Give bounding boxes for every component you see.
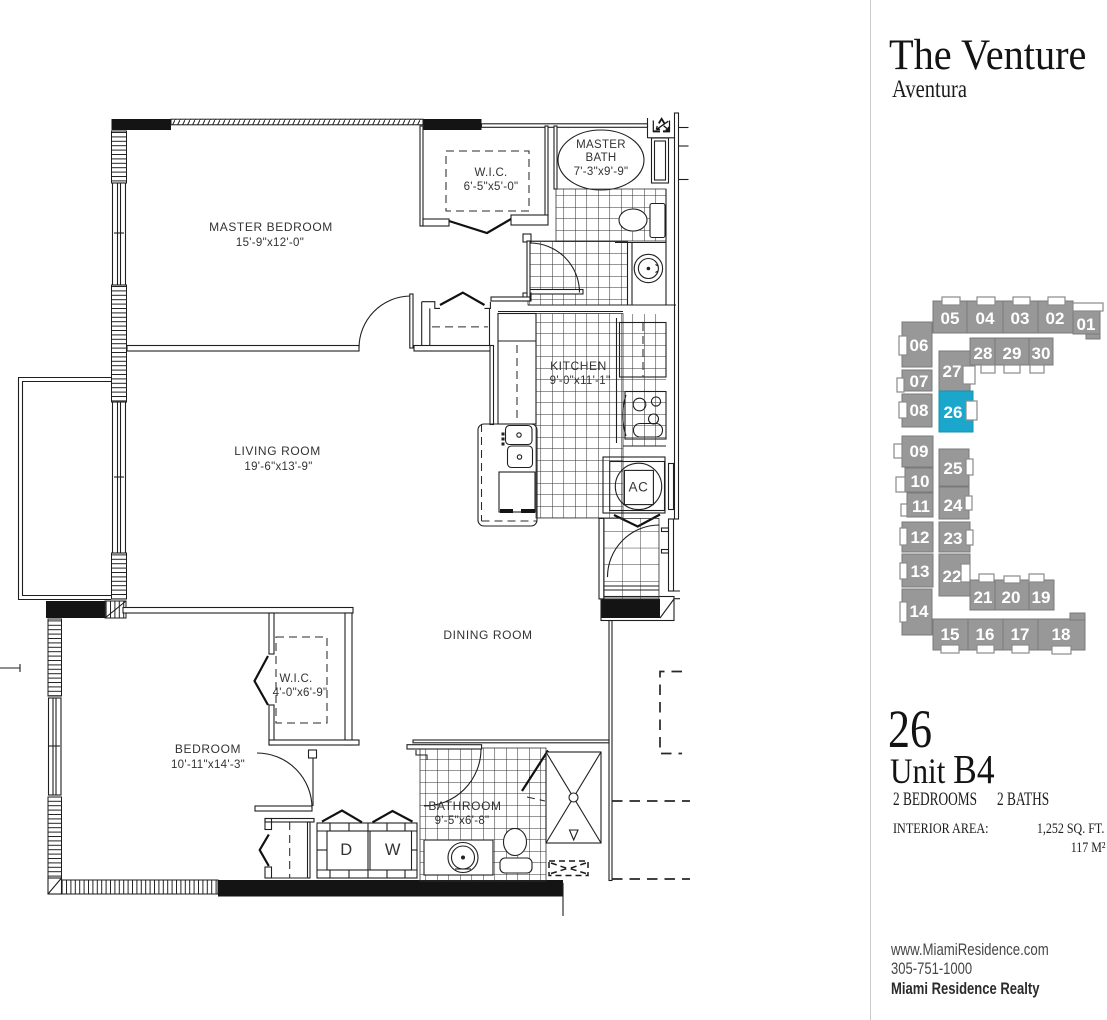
svg-text:BATHROOM: BATHROOM [428, 799, 501, 813]
svg-text:19: 19 [1032, 588, 1051, 607]
svg-text:18: 18 [1052, 625, 1071, 644]
svg-text:DINING ROOM: DINING ROOM [443, 628, 532, 642]
svg-text:25: 25 [944, 459, 963, 478]
svg-text:24: 24 [944, 496, 963, 515]
svg-text:17: 17 [1011, 625, 1030, 644]
svg-text:13: 13 [911, 562, 930, 581]
svg-text:06: 06 [910, 336, 929, 355]
svg-text:MASTER BEDROOM: MASTER BEDROOM [209, 220, 333, 234]
svg-text:26: 26 [944, 403, 963, 422]
svg-text:08: 08 [910, 401, 929, 420]
svg-text:KITCHEN: KITCHEN [550, 359, 607, 373]
svg-text:4'-0"x6'-9": 4'-0"x6'-9" [273, 687, 328, 699]
svg-text:28: 28 [974, 344, 993, 363]
svg-text:11: 11 [912, 497, 930, 516]
svg-text:29: 29 [1003, 344, 1022, 363]
svg-text:7'-3"x9'-9": 7'-3"x9'-9" [574, 166, 629, 178]
svg-text:AC: AC [629, 480, 649, 495]
svg-text:05: 05 [941, 309, 960, 328]
svg-text:09: 09 [910, 442, 929, 461]
svg-text:07: 07 [910, 372, 929, 391]
svg-text:BEDROOM: BEDROOM [175, 742, 241, 756]
svg-text:W: W [385, 841, 401, 859]
svg-text:02: 02 [1046, 309, 1065, 328]
svg-text:03: 03 [1011, 309, 1030, 328]
svg-text:15: 15 [941, 625, 960, 644]
svg-text:BATH: BATH [585, 152, 616, 164]
svg-text:15'-9"x12'-0": 15'-9"x12'-0" [236, 237, 304, 249]
svg-text:23: 23 [944, 529, 963, 548]
svg-text:W.I.C.: W.I.C. [474, 167, 507, 179]
svg-text:10: 10 [911, 472, 930, 491]
svg-text:22: 22 [943, 567, 962, 586]
svg-text:04: 04 [976, 309, 995, 328]
svg-text:30: 30 [1032, 344, 1051, 363]
svg-text:MASTER: MASTER [576, 139, 626, 151]
svg-text:14: 14 [910, 602, 929, 621]
svg-text:01: 01 [1077, 315, 1096, 334]
svg-text:LIVING ROOM: LIVING ROOM [234, 444, 321, 458]
svg-text:6'-5"x5'-0": 6'-5"x5'-0" [464, 181, 519, 193]
svg-text:W.I.C.: W.I.C. [279, 673, 312, 685]
svg-text:9'-5"x6'-8": 9'-5"x6'-8" [435, 815, 490, 827]
svg-text:21: 21 [974, 588, 993, 607]
svg-text:9'-0"x11'-1": 9'-0"x11'-1" [550, 375, 611, 387]
svg-text:19'-6"x13'-9": 19'-6"x13'-9" [244, 461, 312, 473]
svg-text:12: 12 [911, 528, 930, 547]
svg-text:20: 20 [1002, 588, 1021, 607]
svg-text:D: D [340, 841, 353, 859]
svg-text:10'-11"x14'-3": 10'-11"x14'-3" [171, 759, 245, 771]
svg-text:27: 27 [943, 362, 962, 381]
svg-text:16: 16 [976, 625, 995, 644]
